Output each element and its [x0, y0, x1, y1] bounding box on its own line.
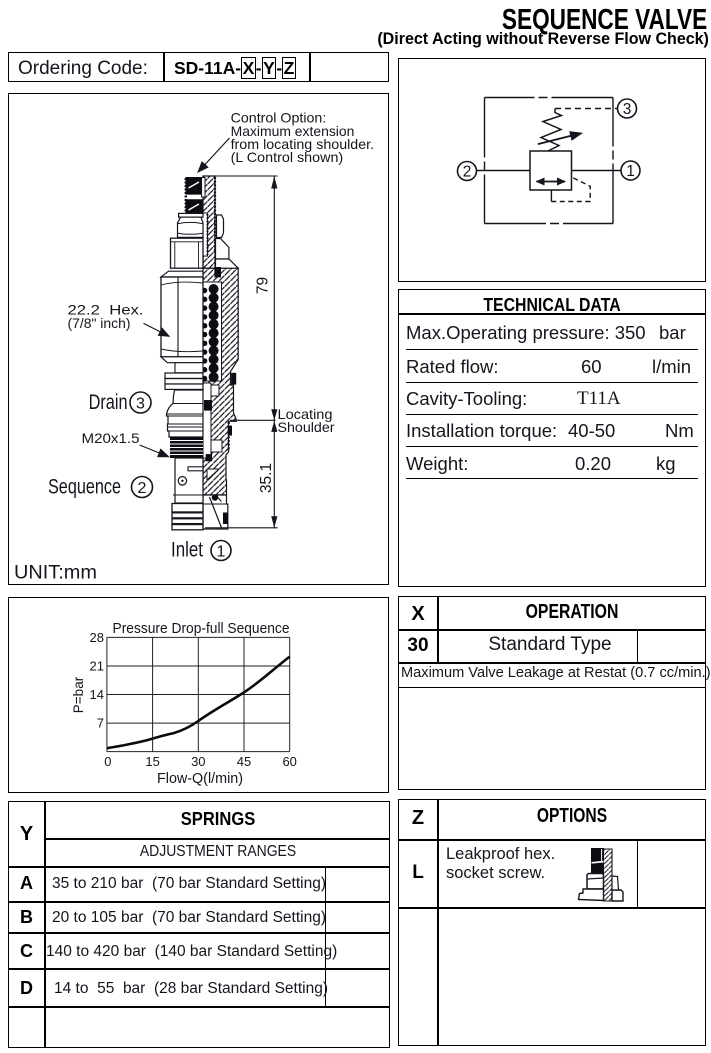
svg-text:60: 60	[282, 754, 296, 769]
svg-text:3: 3	[136, 396, 145, 413]
svg-text:1: 1	[626, 163, 635, 180]
svg-text:M20x1.5: M20x1.5	[82, 431, 140, 446]
svg-text:Inlet: Inlet	[171, 538, 203, 562]
svg-text:Drain: Drain	[89, 390, 128, 414]
svg-text:UNIT:mm: UNIT:mm	[14, 563, 97, 584]
svg-text:P=bar: P=bar	[71, 676, 86, 713]
svg-text:7: 7	[97, 716, 104, 731]
svg-text:(7/8" inch): (7/8" inch)	[68, 316, 131, 331]
svg-text:2: 2	[463, 164, 472, 181]
svg-text:28: 28	[90, 630, 104, 645]
svg-text:21: 21	[90, 659, 104, 674]
svg-text:79: 79	[255, 277, 272, 294]
svg-text:(L Control shown): (L Control shown)	[231, 150, 344, 165]
svg-text:Pressure Drop-full Sequence: Pressure Drop-full Sequence	[113, 621, 290, 637]
svg-text:14: 14	[90, 687, 104, 702]
svg-text:Shoulder: Shoulder	[278, 420, 335, 435]
svg-text:35.1: 35.1	[258, 463, 275, 493]
svg-text:Flow-Q(l/min): Flow-Q(l/min)	[157, 771, 243, 787]
svg-text:3: 3	[623, 101, 632, 118]
svg-text:45: 45	[237, 754, 251, 769]
svg-text:15: 15	[145, 754, 159, 769]
svg-text:1: 1	[217, 544, 226, 561]
svg-text:0: 0	[104, 754, 111, 769]
svg-text:2: 2	[138, 480, 147, 497]
svg-text:30: 30	[191, 754, 205, 769]
svg-text:Sequence: Sequence	[48, 475, 121, 499]
